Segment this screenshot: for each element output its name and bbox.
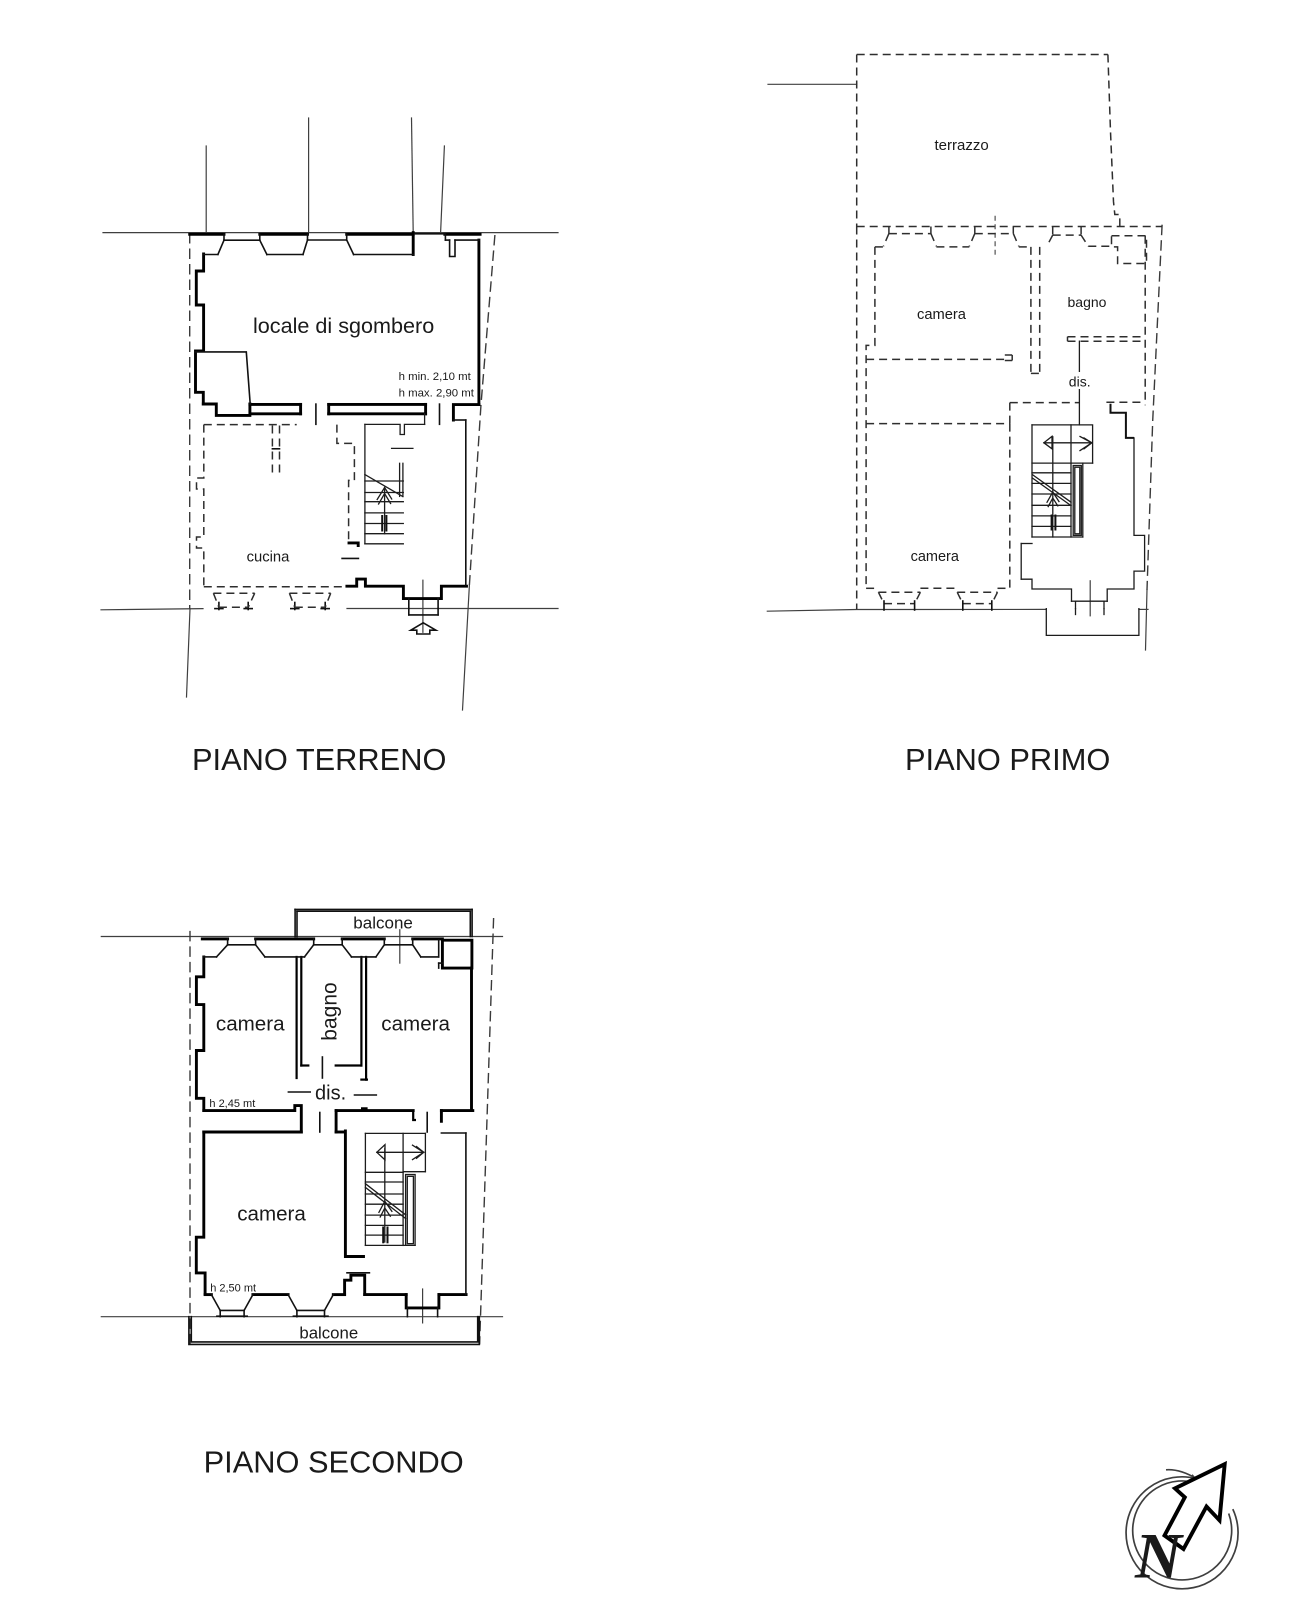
svg-text:cucina: cucina: [247, 550, 291, 566]
svg-text:camera: camera: [216, 1013, 285, 1036]
svg-text:terrazzo: terrazzo: [935, 137, 989, 154]
svg-text:h min. 2,10 mt: h min. 2,10 mt: [399, 371, 472, 383]
svg-text:dis.: dis.: [1069, 374, 1091, 390]
svg-text:balcone: balcone: [353, 914, 413, 933]
svg-text:h 2,45 mt: h 2,45 mt: [209, 1098, 255, 1110]
svg-text:PIANO PRIMO: PIANO PRIMO: [905, 742, 1110, 777]
svg-text:camera: camera: [381, 1013, 450, 1036]
svg-text:N: N: [1134, 1521, 1184, 1593]
svg-text:locale di sgombero: locale di sgombero: [253, 313, 434, 338]
svg-text:camera: camera: [917, 307, 967, 323]
svg-text:PIANO TERRENO: PIANO TERRENO: [192, 742, 446, 777]
svg-text:h max. 2,90 mt: h max. 2,90 mt: [399, 388, 475, 400]
svg-text:camera: camera: [911, 549, 960, 565]
svg-text:balcone: balcone: [299, 1324, 358, 1343]
svg-text:bagno: bagno: [1068, 294, 1107, 310]
svg-text:camera: camera: [237, 1203, 306, 1226]
svg-text:PIANO SECONDO: PIANO SECONDO: [204, 1444, 464, 1479]
svg-text:bagno: bagno: [319, 982, 342, 1040]
svg-text:dis.: dis.: [315, 1083, 346, 1105]
svg-text:h 2,50 mt: h 2,50 mt: [210, 1283, 256, 1295]
